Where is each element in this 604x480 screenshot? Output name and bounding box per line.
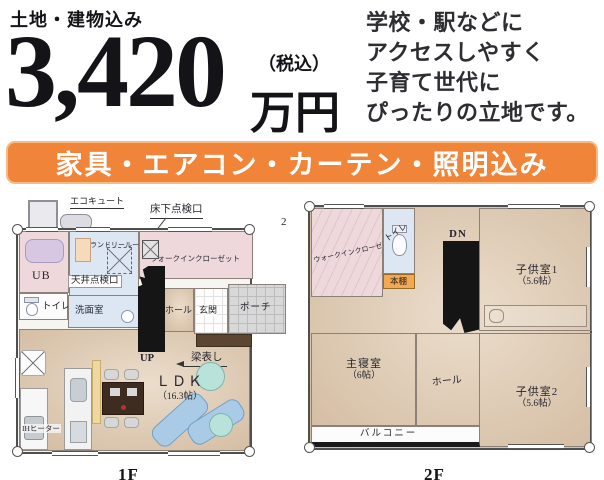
label-toilet-1f: トイレ <box>42 302 71 313</box>
included-items-banner: 家具・エアコン・カーテン・照明込み <box>6 141 598 184</box>
label-master-name: 主寝室 <box>334 358 394 371</box>
floorplan-2f-body: ウォークインクローゼット トイレ 本棚 DN 子供室1 （5.6帖） <box>308 205 592 450</box>
label-ldk-name: ＬＤＫ <box>142 375 218 392</box>
grid-mark: 2 <box>281 216 287 229</box>
pillow-outline <box>489 309 504 323</box>
window-mark <box>168 451 220 456</box>
price-value: 3,420 <box>5 20 224 124</box>
arrow-left-icon <box>176 361 184 367</box>
label-kids1-name: 子供室1 <box>497 264 577 277</box>
flyer-page: 土地・建物込み 3,420 （税込） 万円 学校・駅などに アクセスしやすく 子… <box>0 0 604 480</box>
room-hall-2f: ホール <box>416 333 480 426</box>
tableware <box>127 388 137 396</box>
stairs-shape-2f <box>443 241 480 333</box>
label-hall-2f: ホール <box>431 374 462 389</box>
location-copy-line: 子育て世代に <box>366 68 602 98</box>
room-unit-bath: UB <box>19 231 69 293</box>
kitchen-counter <box>64 368 92 450</box>
room-toilet-2f: トイレ <box>383 208 415 274</box>
label-entrance: 玄関 <box>199 305 217 316</box>
underfloor-hatch-icon <box>142 240 159 259</box>
floorplan-1f: エコキュート 床下点検口 UB ランドリールーム ウォークインクローゼット 天井… <box>8 196 298 480</box>
bathtub-icon <box>25 239 64 263</box>
label-underfloor-hatch: 床下点検口 <box>150 204 203 219</box>
label-hall-1f: ホール <box>165 305 192 316</box>
label-kids2: 子供室2 （5.6帖） <box>497 386 577 411</box>
corner-marker <box>12 224 23 235</box>
window-mark <box>586 367 591 407</box>
bookshelf: 本棚 <box>383 274 415 289</box>
label-kids2-name: 子供室2 <box>497 386 577 399</box>
floor-hatch-icon <box>20 350 46 376</box>
label-stairs-down: DN <box>449 228 467 241</box>
room-balcony: バルコニー <box>311 426 480 447</box>
room-toilet-1f: トイレ <box>19 293 68 320</box>
corner-marker <box>304 442 315 453</box>
label-ceiling-hatch: 天井点検口 <box>68 275 122 288</box>
label-stairs-up: UP <box>140 353 154 366</box>
corner-marker <box>584 442 595 453</box>
chair <box>124 417 139 428</box>
corner-marker <box>304 201 315 212</box>
floorplan-2f: ウォークインクローゼット トイレ 本棚 DN 子供室1 （5.6帖） <box>302 196 598 480</box>
location-copy-line: 学校・駅などに <box>366 8 602 38</box>
room-kids2: 子供室2 （5.6帖） <box>479 333 592 447</box>
tableware <box>110 388 120 396</box>
corner-marker <box>12 446 23 457</box>
price-unit: 万円 <box>250 76 340 141</box>
window-mark <box>26 227 58 232</box>
room-entrance: 玄関 <box>194 288 228 334</box>
tax-note: （税込） <box>258 50 330 76</box>
label-ih-heater: IHヒーター <box>21 424 61 433</box>
label-ecocute: エコキュート <box>70 196 124 209</box>
window-mark <box>76 227 110 232</box>
label-ldk: ＬＤＫ （16.3帖） <box>142 375 218 403</box>
label-balcony: バルコニー <box>360 429 417 440</box>
label-kids1-area: （5.6帖） <box>497 277 577 288</box>
room-walk-in-closet-2f: ウォークインクローゼット <box>311 208 383 297</box>
room-hall-1f: ホール <box>163 288 194 332</box>
window-mark <box>586 247 591 287</box>
floor-label-2f: 2F <box>424 465 445 480</box>
location-copy-line: ぴったりの立地です。 <box>366 98 602 128</box>
banner-text: 家具・エアコン・カーテン・照明込み <box>56 143 549 182</box>
window-mark <box>52 451 98 456</box>
label-walk-in-closet-2f: ウォークインクローゼット <box>313 242 383 265</box>
label-bookshelf: 本棚 <box>390 276 407 286</box>
room-porch: ポーチ <box>228 284 286 334</box>
chair <box>124 369 139 380</box>
shoe-cabinet <box>196 334 252 347</box>
corner-marker <box>244 224 255 235</box>
toilet-icon <box>26 303 38 316</box>
washer-icon <box>75 238 91 262</box>
room-master-bedroom: 主寝室 （6帖） <box>311 333 416 426</box>
bed-outline <box>484 305 587 327</box>
label-kids1: 子供室1 （5.6帖） <box>497 264 577 289</box>
window-mark <box>15 358 20 398</box>
kitchen-panel <box>92 360 101 424</box>
dining-table <box>102 382 144 415</box>
tableware-red <box>121 405 126 410</box>
window-mark <box>168 227 212 232</box>
label-master: 主寝室 （6帖） <box>334 358 394 383</box>
room-kids1: 子供室1 （5.6帖） <box>479 208 592 331</box>
sink-icon <box>121 310 134 323</box>
location-copy-line: アクセスしやすく <box>366 38 602 68</box>
window-mark <box>508 444 564 449</box>
label-washroom: 洗面室 <box>75 306 104 317</box>
window-mark <box>324 204 364 209</box>
room-washroom: 洗面室 <box>68 295 139 328</box>
label-kids2-area: （5.6帖） <box>497 399 577 410</box>
ceiling-hatch-icon <box>107 247 132 274</box>
label-ldk-area: （16.3帖） <box>142 392 218 403</box>
stairs-shape-1f <box>138 266 165 352</box>
kitchen-sink-icon <box>70 378 87 402</box>
floor-label-1f: 1F <box>118 465 139 480</box>
location-copy: 学校・駅などに アクセスしやすく 子育て世代に ぴったりの立地です。 <box>366 8 602 128</box>
label-master-area: （6帖） <box>334 371 394 382</box>
label-unit-bath: UB <box>32 268 51 282</box>
round-table <box>209 413 233 437</box>
label-walk-in-closet-1f: ウォークインクローゼット <box>150 254 240 263</box>
chair <box>104 369 119 380</box>
chair <box>104 417 119 428</box>
floorplan-1f-body: UB ランドリールーム ウォークインクローゼット 天井点検口 トイレ 洗面室 <box>16 228 252 454</box>
corner-marker <box>244 446 255 457</box>
label-porch: ポーチ <box>240 303 272 314</box>
window-mark <box>508 204 560 209</box>
kitchen-stove-icon <box>70 421 87 443</box>
corner-marker <box>584 201 595 212</box>
